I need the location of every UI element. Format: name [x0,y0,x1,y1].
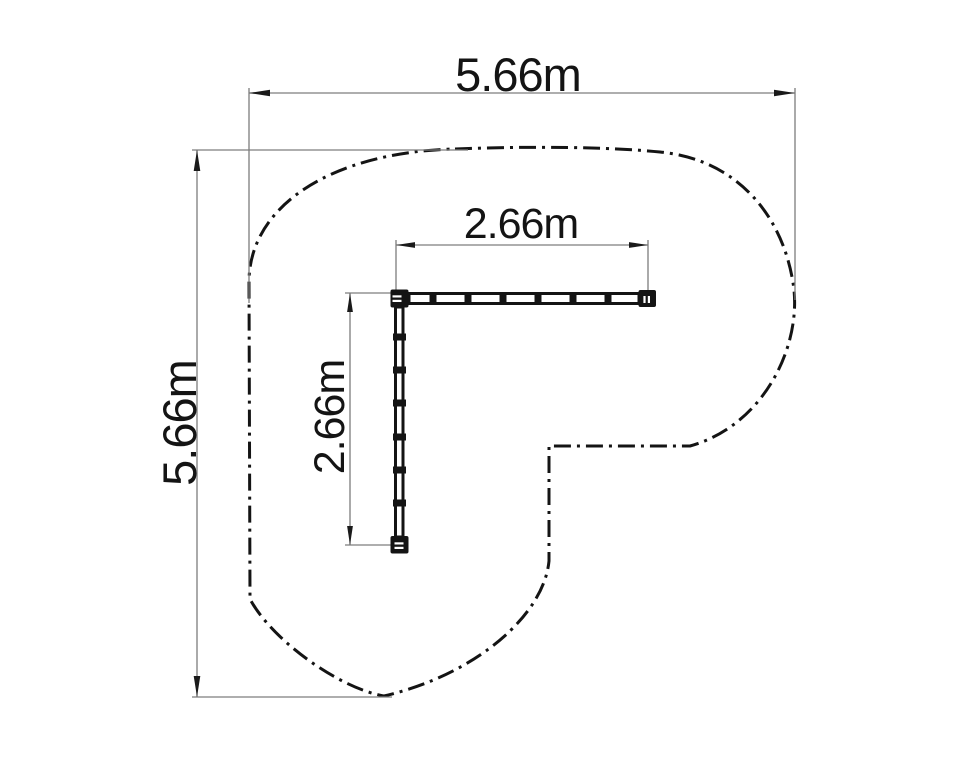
technical-drawing-page: 5.66m 5.66m 2.66m 2.66m [0,0,956,768]
arrowhead-left [396,242,415,248]
arrowhead-down [194,676,201,697]
right-end-post [639,290,657,307]
bottom-end-post [391,536,409,554]
arrowhead-right [629,242,648,248]
inner-height-dimension-label: 2.66m [305,342,355,492]
l-shaped-structure [391,290,657,554]
arrowhead-up [194,150,201,171]
outer-width-dimension-label: 5.66m [433,48,603,102]
arrowhead-left [249,90,270,97]
arrowhead-down [347,526,353,545]
arrowhead-right [774,90,795,97]
corner-post [391,290,409,308]
outer-height-dimension-label: 5.66m [153,338,207,508]
drawing-canvas [0,0,956,768]
dimension-outer-width [249,88,795,303]
inner-width-dimension-label: 2.66m [446,199,596,249]
arrowhead-up [347,293,353,312]
